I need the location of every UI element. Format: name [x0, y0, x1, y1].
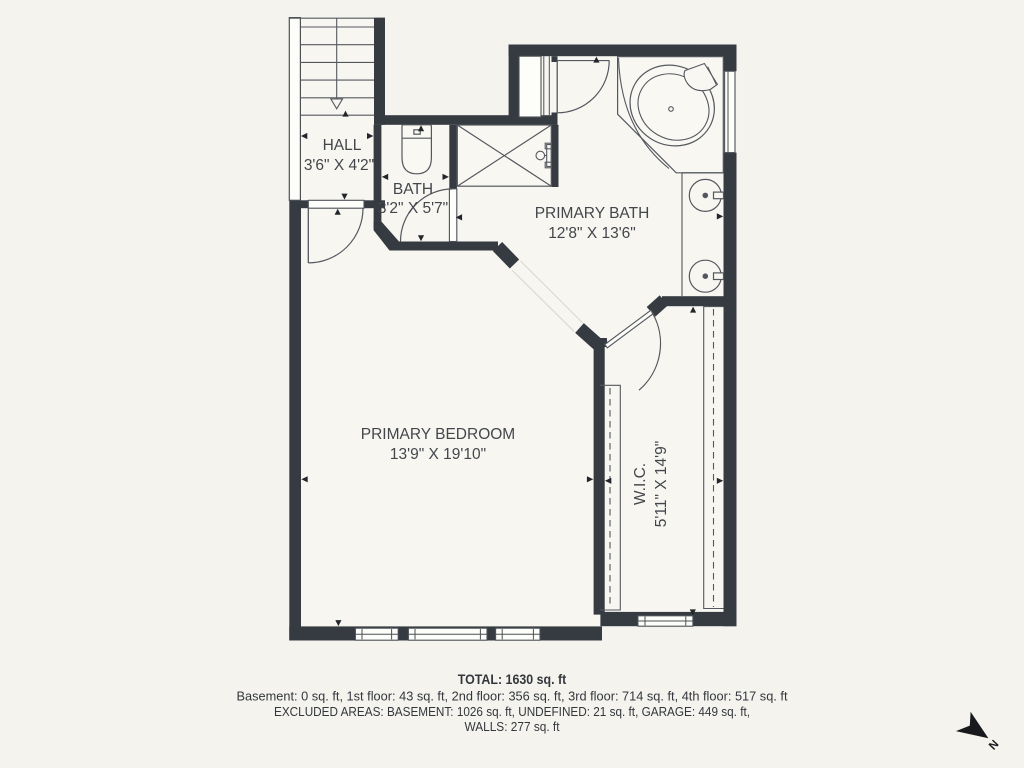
svg-text:HALL: HALL [323, 137, 362, 154]
svg-text:Basement: 0 sq. ft, 1st floor:: Basement: 0 sq. ft, 1st floor: 43 sq. ft… [237, 688, 788, 703]
svg-text:PRIMARY BATH: PRIMARY BATH [535, 205, 650, 222]
svg-text:W.I.C.: W.I.C. [632, 463, 649, 505]
svg-text:3'6" X 4'2": 3'6" X 4'2" [304, 157, 374, 174]
svg-text:PRIMARY BEDROOM: PRIMARY BEDROOM [361, 426, 515, 443]
svg-text:EXCLUDED AREAS: BASEMENT: 1026: EXCLUDED AREAS: BASEMENT: 1026 sq. ft, U… [274, 704, 750, 719]
svg-text:13'9" X 19'10": 13'9" X 19'10" [390, 446, 486, 463]
svg-text:WALLS: 277 sq. ft: WALLS: 277 sq. ft [465, 719, 560, 734]
svg-text:5'11" X 14'9": 5'11" X 14'9" [653, 441, 670, 527]
svg-text:3'2" X 5'7": 3'2" X 5'7" [378, 200, 448, 217]
svg-text:12'8" X 13'6": 12'8" X 13'6" [548, 225, 636, 242]
svg-text:TOTAL: 1630 sq. ft: TOTAL: 1630 sq. ft [458, 672, 567, 687]
svg-text:BATH: BATH [393, 181, 433, 198]
